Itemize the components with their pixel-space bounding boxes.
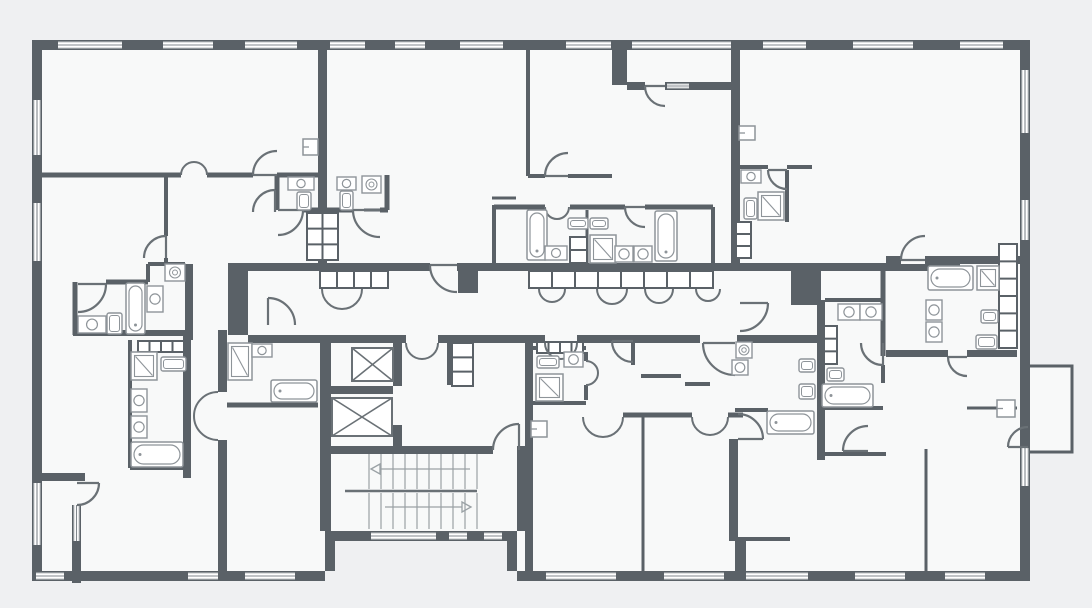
- floor-plan-svg: [0, 0, 1092, 608]
- balcony: [1028, 366, 1072, 452]
- floor-plan: [0, 0, 1092, 608]
